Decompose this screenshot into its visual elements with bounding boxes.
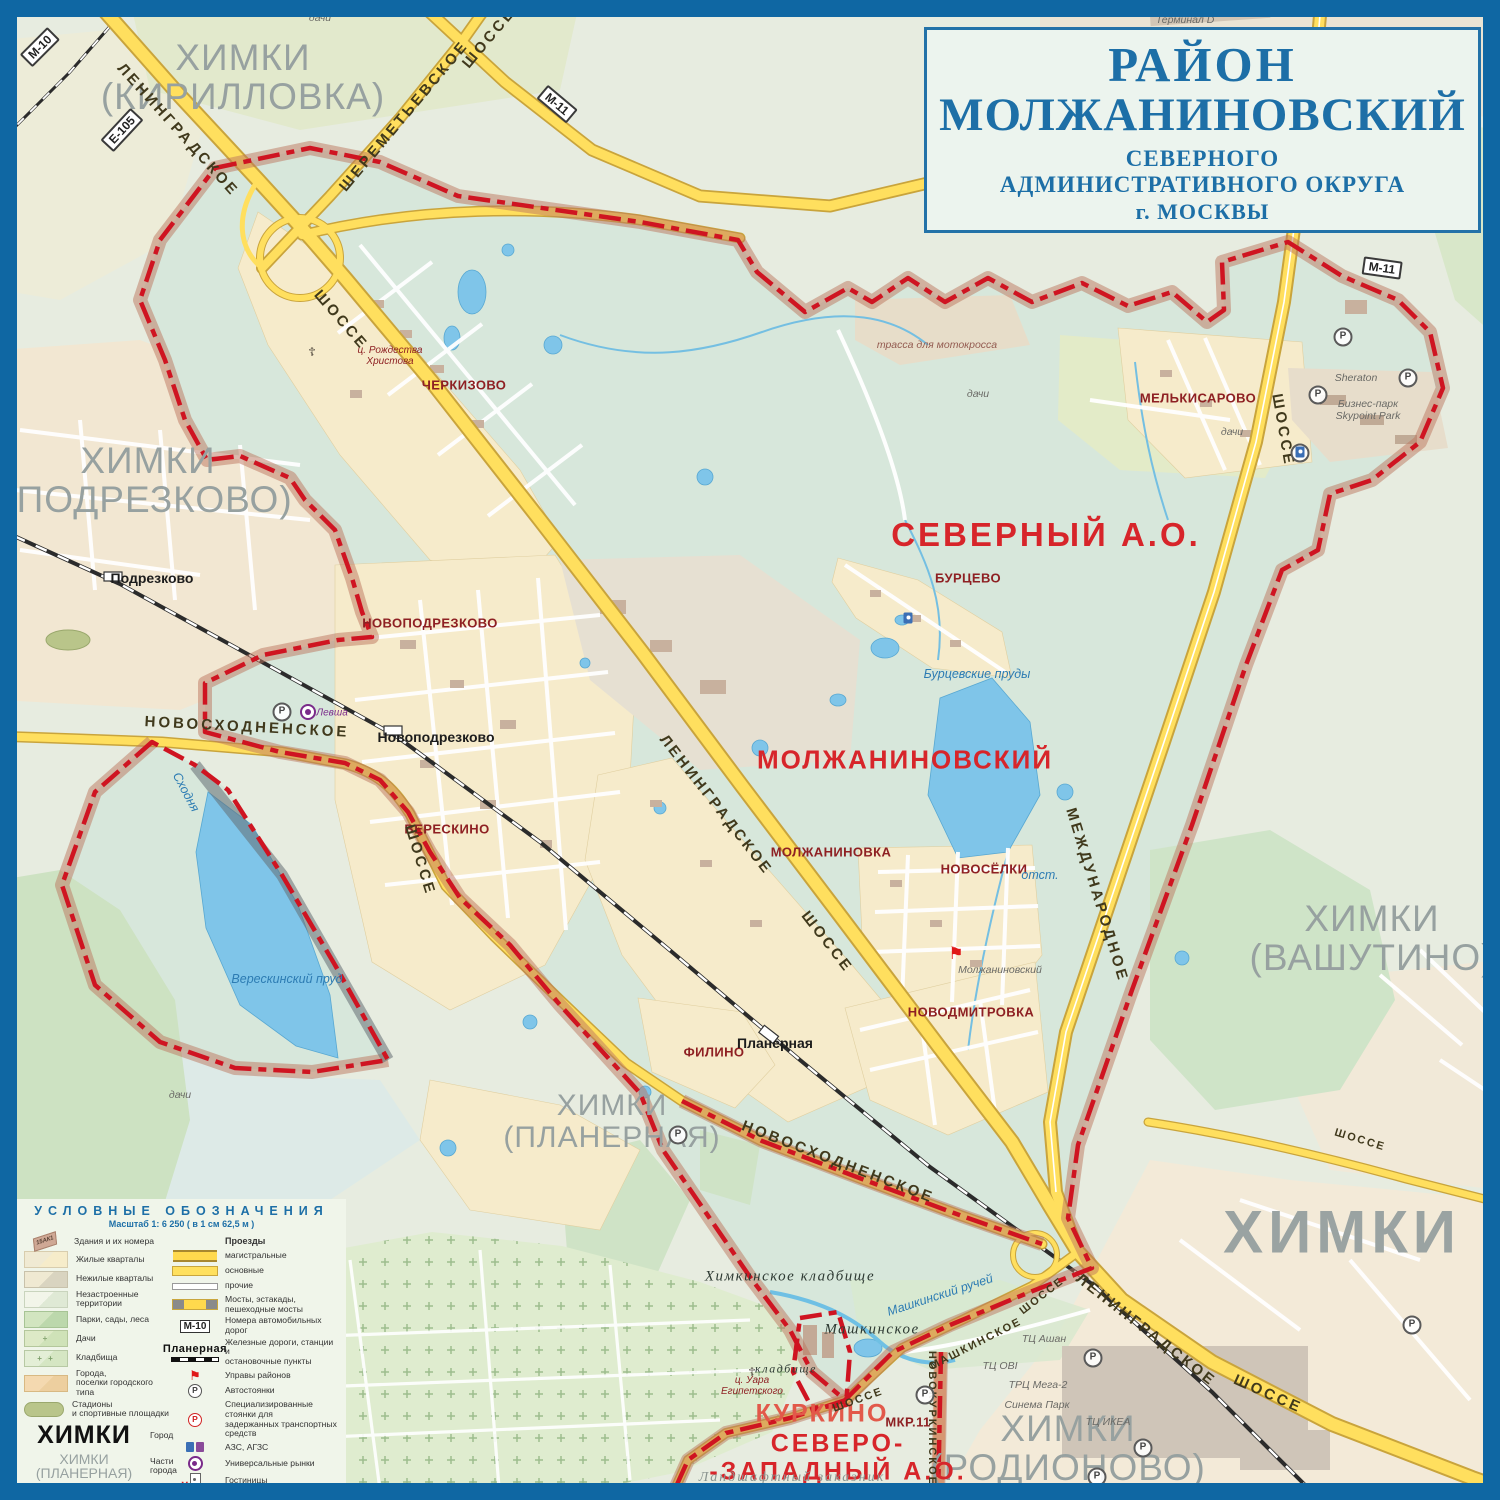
legend-name-item: МОЛЖАНИНОВСКИЙРайоны Москвы [24,1483,172,1484]
map-label: дачи [1221,426,1243,438]
parking-icon: Р [1399,369,1418,388]
legend-item: основные [172,1265,339,1278]
map-label: Ландшафтный заказник [699,1470,886,1486]
legend-item: магистральные [172,1249,339,1262]
map-label: Синема Парк [1004,1399,1069,1411]
parking-icon: Р [1084,1349,1103,1368]
legend-item-label: Нежилые кварталы [76,1274,153,1284]
legend-item-label: Специализированные стоянки для задержанн… [225,1400,339,1439]
legend-item-label: Железные дороги, станции и остановочные … [225,1338,339,1367]
map-label: ТЦ ИКЕА [1086,1416,1131,1428]
legend-item-label: Дачи [76,1334,96,1344]
nonres-swatch [24,1271,68,1288]
legend-item: РСпециализированные стоянки для задержан… [172,1400,339,1439]
map-label: ХИМКИ (ВАШУТИНО) [1250,899,1495,977]
map-label: СЕВЕРНЫЙ А.О. [891,517,1201,553]
map-label: Новоподрезково [378,729,495,745]
map-label: ТРЦ Мега-2 [1009,1379,1068,1391]
map-label: МКР.11 [885,1415,930,1430]
legend-box: УСЛОВНЫЕ ОБОЗНАЧЕНИЯ Масштаб 1: 6 250 ( … [17,1199,346,1484]
legend-name-item: ХИМКИГород [24,1421,172,1450]
map-label: ШОССЕ [459,4,519,71]
map-label: трасса для мотокросса [877,339,997,351]
parkred-icon: Р [172,1413,218,1427]
shield-icon: М-10 [172,1320,218,1333]
dacha-swatch: + [24,1330,68,1347]
map-label: Машкинское [824,1322,919,1339]
map-label: ТЦ Ашан [1022,1333,1066,1345]
church-icon: ☦ [748,1365,756,1379]
market-icon [300,704,316,720]
legend-item-label: Управы районов [225,1371,291,1381]
map-label: Молжаниновский [958,964,1042,976]
legend-item: +Дачи [24,1330,172,1347]
map-label: ШОССЕ [311,287,372,354]
main-icon [172,1265,218,1277]
title-box: РАЙОН МОЛЖАНИНОВСКИЙ СЕВЕРНОГО АДМИНИСТР… [924,27,1481,233]
cem-swatch: + + [24,1350,68,1367]
legend-item-label: Номера автомобильных дорог [225,1316,339,1335]
parking-icon: Р [1309,386,1328,405]
bld-swatch: 15АК1 [24,1234,66,1249]
market-icon [172,1456,218,1471]
map-label: Левша [316,708,348,719]
map-label: дачи [967,388,989,400]
legend-item-label: Парки, сады, леса [76,1315,149,1325]
map-label: Sheraton [1335,372,1378,384]
map-label: ц. Рождества Христова [358,345,423,367]
church-icon: ☦ [308,345,316,359]
legend-name-sample: ХИМКИ [24,1421,144,1450]
park-p-icon: Р [172,1384,218,1398]
parking-icon: Р [1088,1468,1107,1487]
map-label: Бизнес-парк Skypoint Park [1336,398,1401,422]
parking-icon: Р [669,1126,688,1145]
legend-item: ПланернаяЖелезные дороги, станции и оста… [172,1338,339,1367]
map-label: Сходня [170,770,202,814]
rail-icon: Планерная [172,1343,218,1363]
map-label: ХИМКИ (РОДИОНОВО) [930,1409,1206,1487]
map-label: КУРКИНО [756,1400,889,1429]
map-label: М-11 [536,85,577,124]
legend-item-label: Города, поселки городского типа [76,1369,172,1398]
legend-item-label: основные [225,1266,264,1276]
flag-icon: ⚑ [172,1369,218,1382]
map-label: дачи [169,1089,191,1101]
legend-item: Гостиницы [172,1473,339,1484]
legend-item-label: Кладбища [76,1353,117,1363]
legend-item: М-10Номера автомобильных дорог [172,1316,339,1335]
legend-item: + +Кладбища [24,1350,172,1367]
legend-section-header: Проезды [225,1236,265,1246]
map-label: Химкинское кладбище [705,1269,875,1286]
parking-icon: Р [273,703,292,722]
legend-item-label: АЗС, АГЗС [225,1443,268,1453]
legend-item: Универсальные рынки [172,1456,339,1471]
legend-item-label: Незастроенные территории [76,1290,172,1309]
map-label: ФИЛИНО [684,1045,745,1060]
map-label: ШОССЕ [798,908,857,976]
legend-item: АЗС, АГЗС [172,1441,339,1454]
map-label: МЕЖДУНАРОДНОЕ [1062,806,1131,984]
town-swatch [24,1375,68,1392]
map-label: М-11 [1362,256,1403,279]
map-label: ШОССЕ [1333,1127,1387,1154]
fuel-station-icon [904,613,913,624]
map-label: НОВОДМИТРОВКА [908,1005,1034,1020]
title-line-5: г. МОСКВЫ [927,199,1478,225]
map-label: Верескинский пруд [231,972,342,986]
map-label: кладбище [755,1362,817,1377]
bridge-icon [172,1299,218,1311]
uprava-flag-icon: ⚑ [948,944,963,964]
legend-item-label: Стадионы и спортивные площадки [72,1400,169,1419]
other-icon [172,1280,218,1292]
legend-item: РАвтостоянки [172,1384,339,1398]
legend-item-label: Жилые кварталы [76,1255,145,1265]
legend-item: Жилые кварталы [24,1251,172,1268]
map-label: МОЛЖАНИНОВКА [771,845,892,860]
azs-icon [172,1441,218,1453]
legend-item: Города, поселки городского типа [24,1369,172,1398]
map-label: дачи [309,12,331,24]
map-label: МОЛЖАНИНОВСКИЙ [757,745,1053,776]
map-label: Машкинский ручей [885,1271,994,1318]
legend-scale: Масштаб 1: 6 250 ( в 1 см 62,5 м ) [24,1219,339,1229]
title-line-1: РАЙОН [927,40,1478,91]
legend-item: Незастроенные территории [24,1290,172,1309]
vacant-swatch [24,1291,68,1308]
map-label: ЛЕНИНГРАДСКОЕ [1073,1270,1220,1390]
stad-swatch [24,1402,64,1417]
legend-names: ХИМКИГородХИМКИ (ПЛАНЕРНАЯ)Части городаМ… [24,1421,172,1484]
legend-item-label: Мосты, эстакады, пешеходные мосты [225,1295,303,1314]
legend-left-col: 15АК1Здания и их номераЖилые кварталыНеж… [24,1234,172,1419]
parking-icon: Р [1403,1316,1422,1335]
legend-item-label: Здания и их номера [74,1237,154,1247]
legend-title: УСЛОВНЫЕ ОБОЗНАЧЕНИЯ [24,1204,339,1218]
map-label: ХИМКИ [1223,1198,1461,1267]
map-label: ЧЕРКИЗОВО [422,378,507,393]
fuel-station-icon [1296,447,1305,458]
park-swatch [24,1311,68,1328]
map-label: НОВОКУРКИНСКОЕ Ш. [926,1351,938,1500]
legend-item-label: магистральные [225,1251,287,1261]
legend-name-sample: МОЛЖАНИНОВСКИЙ [24,1483,164,1484]
legend-name-label: Город [150,1431,173,1441]
legend-item: прочие [172,1280,339,1293]
map-label: ШОССЕ [1231,1371,1305,1416]
legend-item: Нежилые кварталы [24,1271,172,1288]
legend-item-label: Автостоянки [225,1386,275,1396]
map-label: отст. [1021,868,1058,882]
map-label: М-10 [20,27,61,68]
map-label: ХИМКИ (ПОДРЕЗКОВО) [3,441,292,519]
map-label: Бурцевские пруды [924,667,1031,681]
map-label: НОВОСХОДНЕНСКОЕ [739,1117,936,1206]
legend-item: Мосты, эстакады, пешеходные мосты [172,1295,339,1314]
res-swatch [24,1251,68,1268]
legend-item-label: Гостиницы [225,1476,268,1484]
legend-item: Стадионы и спортивные площадки [24,1400,172,1419]
map-label: НОВОПОДРЕЗКОВО [362,616,498,631]
map-label: Терминал D [1156,14,1215,26]
parking-icon: Р [1134,1439,1153,1458]
parking-icon: Р [1334,328,1353,347]
magis-icon [172,1250,218,1262]
legend-right-col: ПроездымагистральныеосновныепрочиеМосты,… [172,1232,339,1484]
legend-item: 15АК1Здания и их номера [24,1234,172,1249]
legend-name-sample: ХИМКИ (ПЛАНЕРНАЯ) [24,1452,144,1481]
map-label: МЕЛЬКИСАРОВО [1140,391,1256,406]
legend-item-label: Универсальные рынки [225,1459,315,1469]
map-label: ШОССЕ [1017,1275,1066,1317]
map-label: НОВОСЁЛКИ [941,862,1028,877]
map-label: Подрезково [111,570,194,586]
legend-item: ⚑Управы районов [172,1369,339,1382]
parking-icon: Р [916,1386,935,1405]
map-label: Планерная [737,1035,813,1051]
title-line-3: СЕВЕРНОГО [927,146,1478,172]
title-line-4: АДМИНИСТРАТИВНОГО ОКРУГА [927,172,1478,198]
map-label: ТЦ OBI [982,1360,1017,1372]
map-poster: ХИМКИ (КИРИЛЛОВКА)ХИМКИ (ПОДРЕЗКОВО)ХИМК… [0,0,1500,1500]
legend-item: Парки, сады, леса [24,1311,172,1328]
legend-item-label: прочие [225,1281,253,1291]
hotel-icon [172,1473,218,1484]
map-label: ХИМКИ (ПЛАНЕРНАЯ) [503,1090,720,1154]
map-label: БУРЦЕВО [935,571,1001,586]
legend-item: Проезды [172,1234,339,1247]
legend-name-item: ХИМКИ (ПЛАНЕРНАЯ)Части города [24,1452,172,1481]
title-line-2: МОЛЖАНИНОВСКИЙ [927,91,1478,140]
